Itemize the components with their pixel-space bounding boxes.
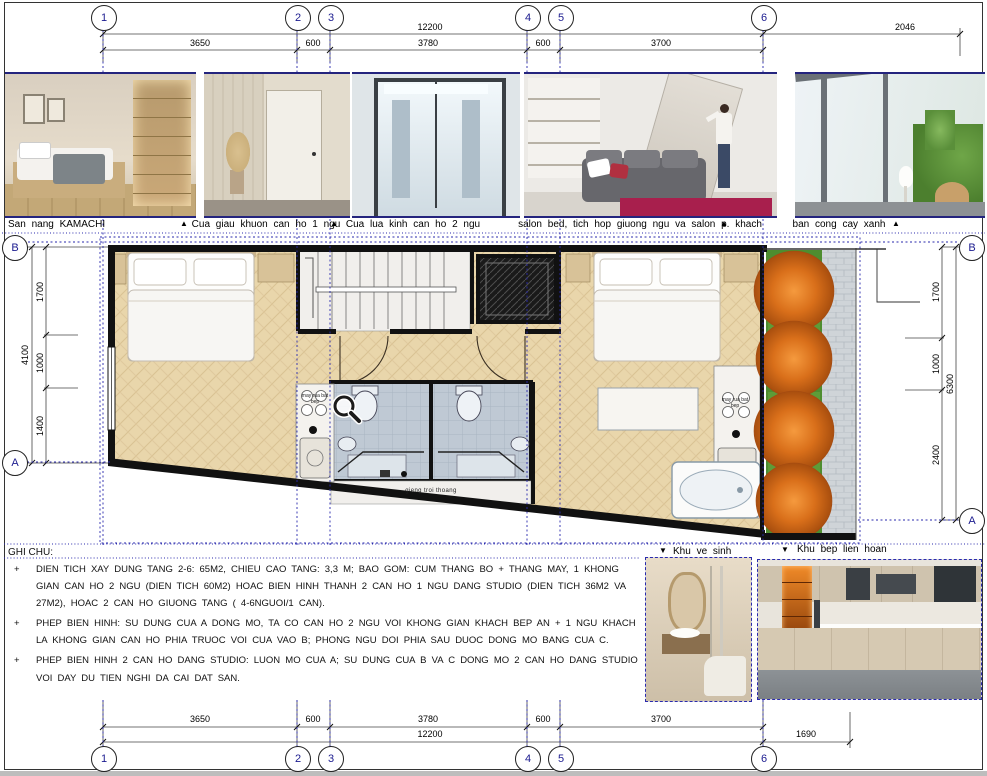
note-bullet: + xyxy=(14,652,20,669)
sofa-cushion xyxy=(624,150,660,168)
dim-right-total: 6300 xyxy=(945,374,955,394)
dim-top-seg3: 3780 xyxy=(418,38,438,48)
sofa-cushion xyxy=(662,150,698,168)
grid-bubble-5-top: 5 xyxy=(548,5,574,31)
grid-bubble-B-left: B xyxy=(2,235,28,261)
curtain-right xyxy=(462,100,480,198)
caption-photo1: San nang KAMACHI xyxy=(8,219,105,230)
red-pillow xyxy=(609,163,629,179)
ceiling-light xyxy=(384,84,488,94)
photo-kitchen xyxy=(757,559,982,700)
door xyxy=(266,90,322,208)
kitchen-label-left: may rua bat bep xyxy=(297,394,333,406)
bath-seat xyxy=(704,656,746,696)
grid-bubble-4-top: 4 xyxy=(515,5,541,31)
dim-top-seg5: 3700 xyxy=(651,38,671,48)
dim-right-seg1: 1700 xyxy=(931,282,941,302)
leader-arrow-icon: ▼ xyxy=(781,545,789,554)
dim-left-seg3: 1400 xyxy=(35,416,45,436)
dim-bottom-right: 1690 xyxy=(796,729,816,739)
note-text: PHEP BIEN HINH: SU DUNG CUA A DONG MO, T… xyxy=(36,618,636,646)
glass-frame-bar xyxy=(883,74,888,216)
books xyxy=(530,80,598,138)
lower-cabinets xyxy=(758,628,981,672)
dim-bottom-seg2: 600 xyxy=(305,714,320,724)
vase xyxy=(230,170,244,194)
dim-bottom-seg1: 3650 xyxy=(190,714,210,724)
note-bullet: + xyxy=(14,561,20,578)
leader-arrow-icon: ▲ xyxy=(720,219,728,228)
photo-bathroom xyxy=(645,557,752,702)
glass-door-mullion xyxy=(435,82,437,208)
grid-bubble-A-left: A xyxy=(2,450,28,476)
marble-table xyxy=(598,388,698,430)
grid-bubble-2-bottom: 2 xyxy=(285,746,311,772)
note-item: + PHEP BIEN HINH: SU DUNG CUA A DONG MO,… xyxy=(6,615,638,649)
grid-bubble-B-right: B xyxy=(959,235,985,261)
backsplash xyxy=(818,602,981,626)
pampas-plant xyxy=(226,132,250,172)
floor-lamp xyxy=(899,166,913,188)
caption-bathroom: Khu ve sinh xyxy=(673,546,731,557)
dim-bottom-seg3: 3780 xyxy=(418,714,438,724)
leader-arrow-icon: ▲ xyxy=(180,219,188,228)
arch-mirror xyxy=(668,572,706,632)
leader-arrow-icon: ▲ xyxy=(892,219,900,228)
dim-right-seg2: 1000 xyxy=(931,354,941,374)
caption-photo3: Cua lua kinh can ho 2 ngu xyxy=(346,219,480,230)
grid-bubble-1-bottom: 1 xyxy=(91,746,117,772)
person-jeans xyxy=(718,144,730,188)
basin xyxy=(670,628,700,638)
photo-bedroom-kamachi xyxy=(5,72,196,218)
grid-bubble-A-right: A xyxy=(959,508,985,534)
dim-bottom-seg5: 3700 xyxy=(651,714,671,724)
kitchen-label-right: may rua bat bep xyxy=(717,398,753,410)
leader-arrow-icon: ▲ xyxy=(330,219,338,228)
person-shirt xyxy=(716,113,732,145)
dim-left-seg1: 1700 xyxy=(35,282,45,302)
dim-right-seg3: 2400 xyxy=(931,445,941,465)
notes-block: + DIEN TICH XAY DUNG TANG 2-6: 65M2, CHI… xyxy=(6,561,638,690)
dim-bottom-seg4: 600 xyxy=(535,714,550,724)
picture-frame xyxy=(23,94,45,124)
top-dimension-lines xyxy=(103,28,960,62)
note-item: + DIEN TICH XAY DUNG TANG 2-6: 65M2, CHI… xyxy=(6,561,638,612)
dim-left-total: 4100 xyxy=(20,345,30,365)
hall-floor xyxy=(204,200,350,216)
wardrobe-shelves xyxy=(133,80,191,206)
dim-top-seg4: 600 xyxy=(535,38,550,48)
plant-top xyxy=(925,110,955,150)
elevator-shaft xyxy=(478,256,556,322)
grid-bubble-6-bottom: 6 xyxy=(751,746,777,772)
note-text: PHEP BIEN HINH 2 CAN HO DANG STUDIO: LUO… xyxy=(36,655,638,683)
grid-bubble-1-top: 1 xyxy=(91,5,117,31)
lightwell-label: gieng troi thoang xyxy=(405,488,457,494)
pillow xyxy=(19,142,51,159)
range-hood xyxy=(876,574,916,594)
photo-green-balcony xyxy=(795,72,985,218)
glass-cabinet xyxy=(934,566,976,604)
dim-left-seg2: 1000 xyxy=(35,353,45,373)
window-bottom-edge xyxy=(0,771,987,776)
drawing-sheet: 1 2 3 4 5 6 1 2 3 4 5 6 B A B A 12200 20… xyxy=(0,0,987,776)
note-item: + PHEP BIEN HINH 2 CAN HO DANG STUDIO: L… xyxy=(6,652,638,686)
caption-photo2: Cua giau khuon can ho 1 ngu xyxy=(192,219,341,230)
dim-top-right: 2046 xyxy=(895,22,915,32)
glass-frame-bar xyxy=(821,74,827,216)
note-bullet: + xyxy=(14,615,20,632)
dim-top-total: 12200 xyxy=(417,22,442,32)
door-handle xyxy=(312,152,316,156)
caption-photo5: ban cong cay xanh xyxy=(793,219,886,230)
person-head xyxy=(720,104,729,113)
kitchen-floor xyxy=(758,670,981,699)
photo-salon-bed xyxy=(524,72,777,218)
picture-frame xyxy=(47,98,65,122)
balcony-notch-line xyxy=(877,249,920,302)
blanket xyxy=(53,154,105,184)
grid-bubble-2-top: 2 xyxy=(285,5,311,31)
caption-kitchen: Khu bep lien hoan xyxy=(797,544,887,555)
stair-handrail xyxy=(316,287,456,292)
photo-hidden-door xyxy=(204,72,350,218)
grid-bubble-4-bottom: 4 xyxy=(515,746,541,772)
curtain-left xyxy=(392,100,410,198)
shower-column xyxy=(720,566,723,662)
dim-top-seg2: 600 xyxy=(305,38,320,48)
note-text: DIEN TICH XAY DUNG TANG 2-6: 65M2, CHIEU… xyxy=(36,564,626,609)
dim-top-seg1: 3650 xyxy=(190,38,210,48)
bottom-dimension-lines xyxy=(103,700,850,748)
notes-title: GHI CHU: xyxy=(8,547,53,558)
grid-bubble-5-bottom: 5 xyxy=(548,746,574,772)
grid-bubble-6-top: 6 xyxy=(751,5,777,31)
dark-cabinet xyxy=(846,568,870,600)
red-rug xyxy=(620,198,772,216)
balcony-deck xyxy=(795,202,985,216)
bathtub xyxy=(672,462,760,518)
dim-bottom-total: 12200 xyxy=(417,729,442,739)
leader-arrow-icon: ▼ xyxy=(659,546,667,555)
photo-glass-door xyxy=(352,72,520,218)
grid-bubble-3-bottom: 3 xyxy=(318,746,344,772)
grid-bubble-3-top: 3 xyxy=(318,5,344,31)
balcony-garden xyxy=(754,250,856,539)
plan-unit xyxy=(108,245,920,540)
